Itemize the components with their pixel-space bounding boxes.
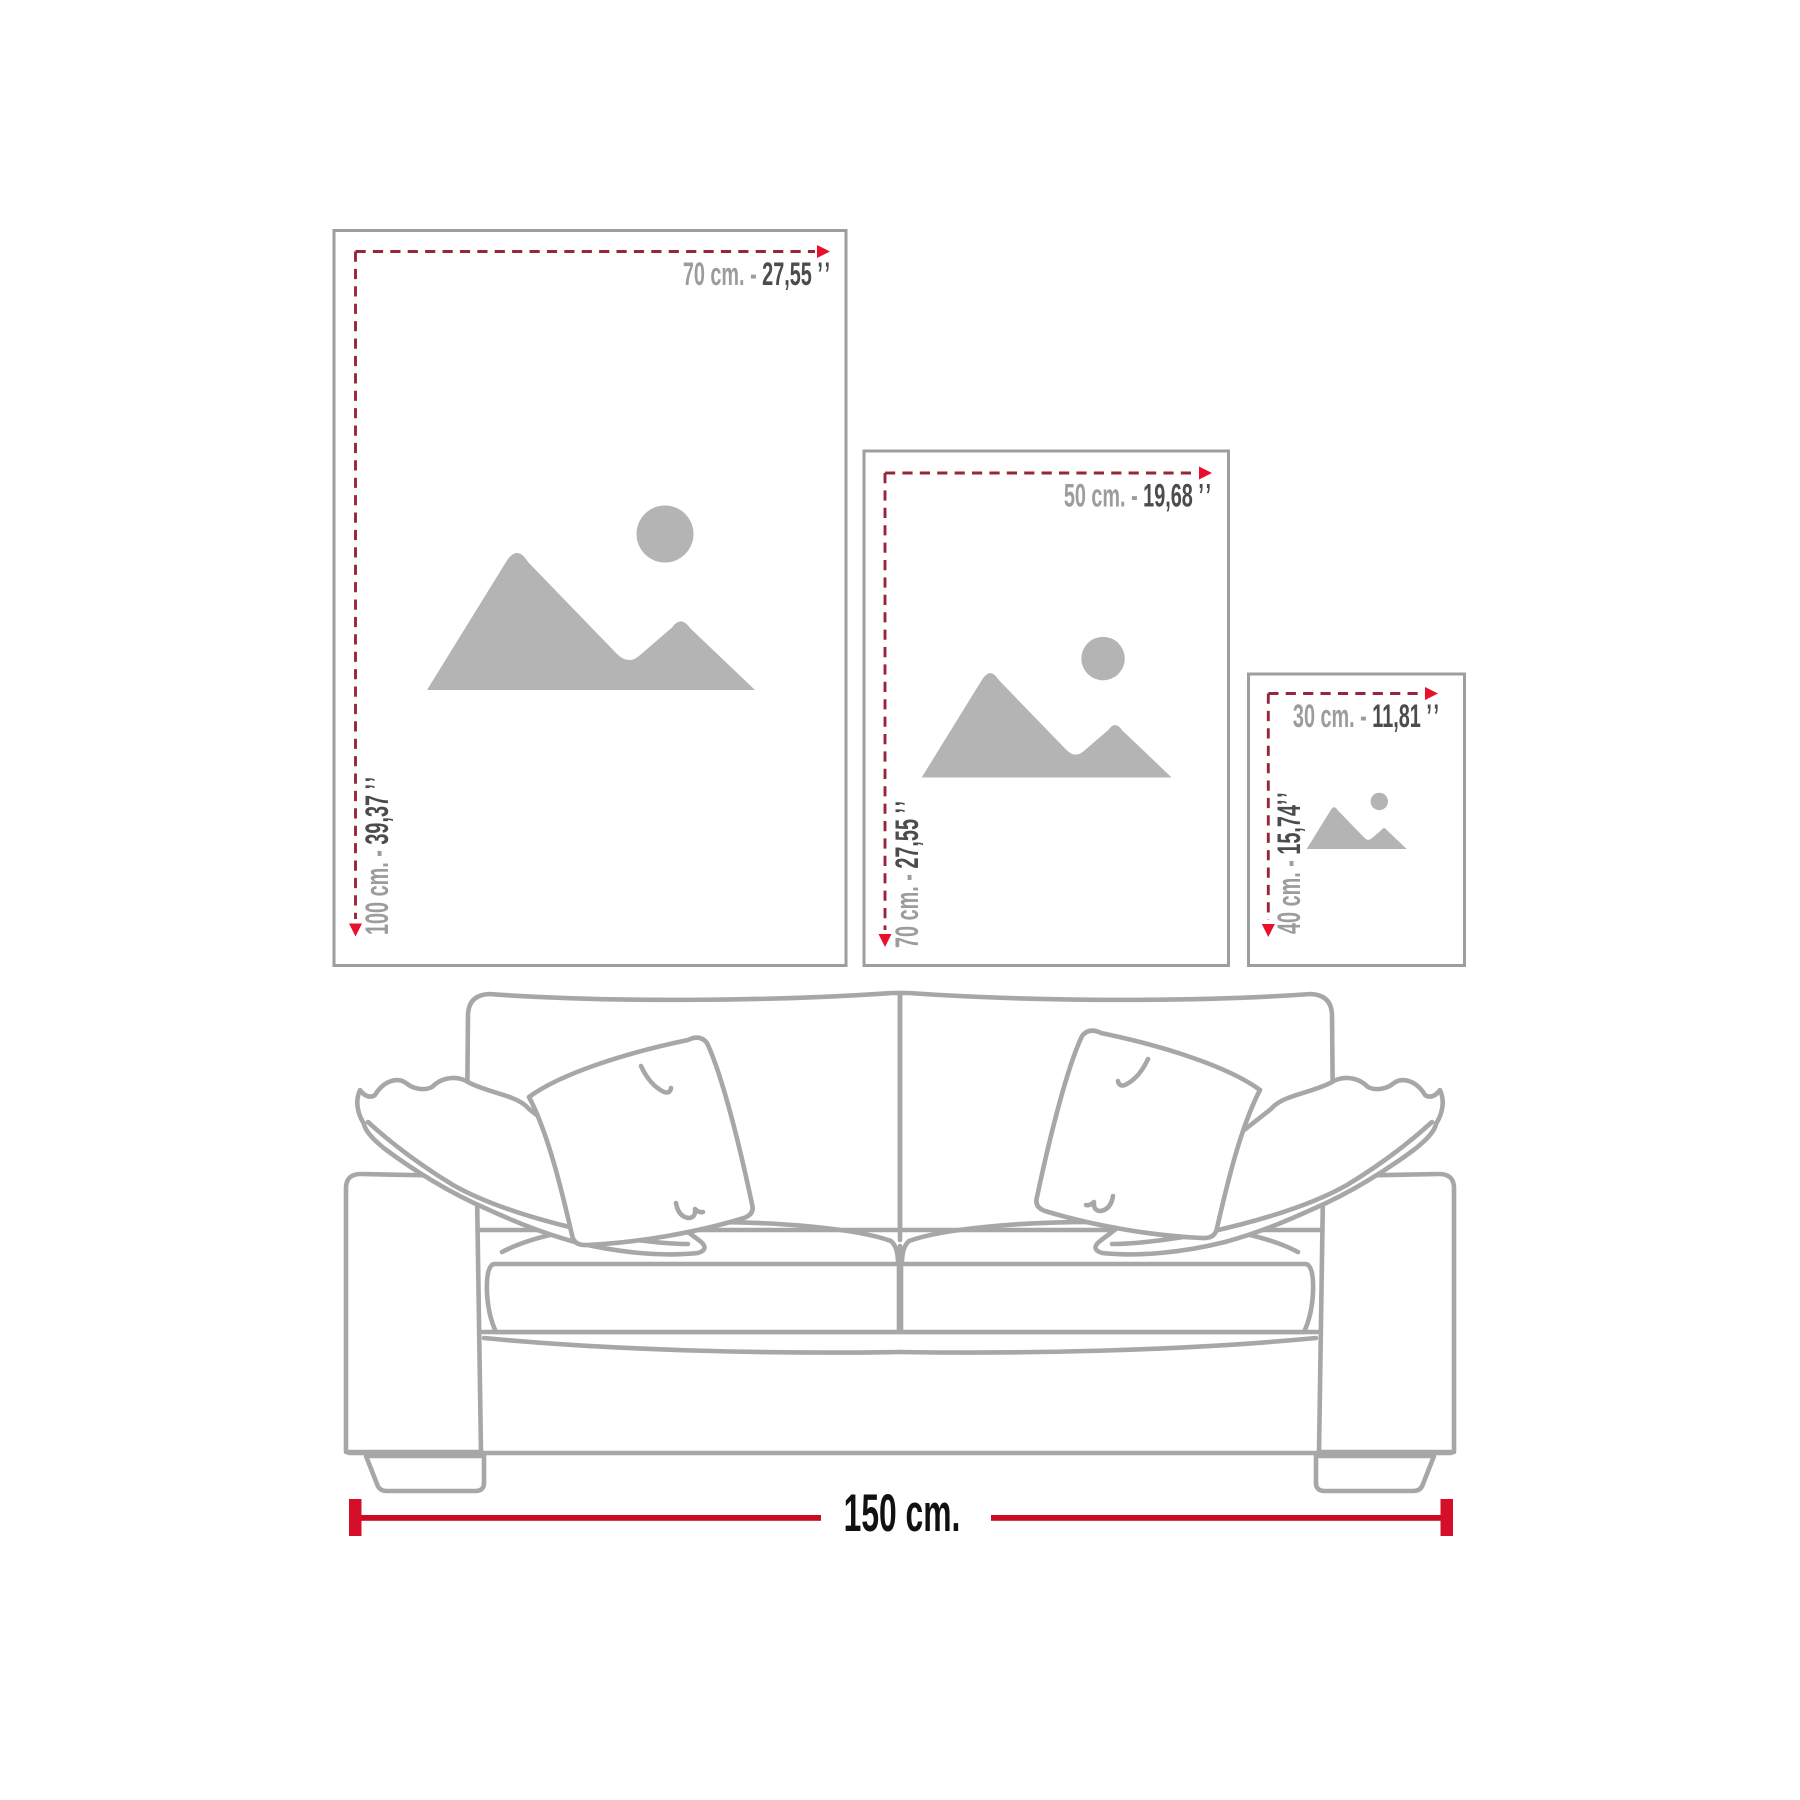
- svg-text:70 cm. - 27,55 ’ ’: 70 cm. - 27,55 ’ ’: [889, 801, 925, 948]
- svg-text:70 cm. - 27,55 ’ ’: 70 cm. - 27,55 ’ ’: [683, 256, 830, 292]
- svg-text:150 cm.: 150 cm.: [844, 1484, 961, 1543]
- svg-text:50 cm. - 19,68 ’ ’: 50 cm. - 19,68 ’ ’: [1064, 478, 1211, 514]
- svg-text:100 cm. - 39,37 ’ ’: 100 cm. - 39,37 ’ ’: [359, 777, 395, 935]
- svg-text:30 cm. - 11,81 ’ ’: 30 cm. - 11,81 ’ ’: [1293, 698, 1439, 734]
- svg-text:40 cm. - 15,74’ ’: 40 cm. - 15,74’ ’: [1271, 792, 1307, 934]
